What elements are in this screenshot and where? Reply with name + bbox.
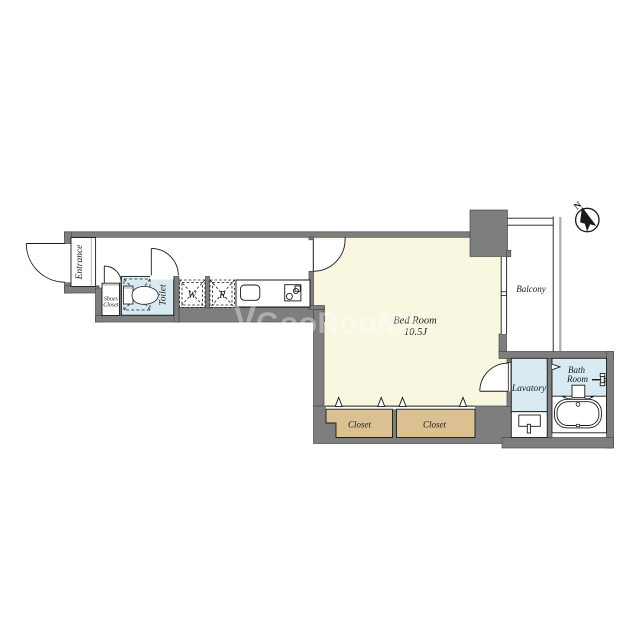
svg-text:Entrance: Entrance [75, 245, 85, 281]
svg-text:Balcony: Balcony [516, 284, 546, 294]
svg-text:Closet: Closet [103, 302, 119, 308]
svg-text:Closet: Closet [423, 420, 447, 430]
svg-text:Lavatory: Lavatory [511, 384, 547, 394]
svg-text:Toilet: Toilet [159, 284, 169, 306]
svg-text:Closet: Closet [348, 420, 372, 430]
svg-text:R: R [218, 290, 225, 301]
svg-text:Room: Room [566, 374, 588, 384]
svg-text:GooRooMa: GooRooMa [256, 307, 420, 340]
